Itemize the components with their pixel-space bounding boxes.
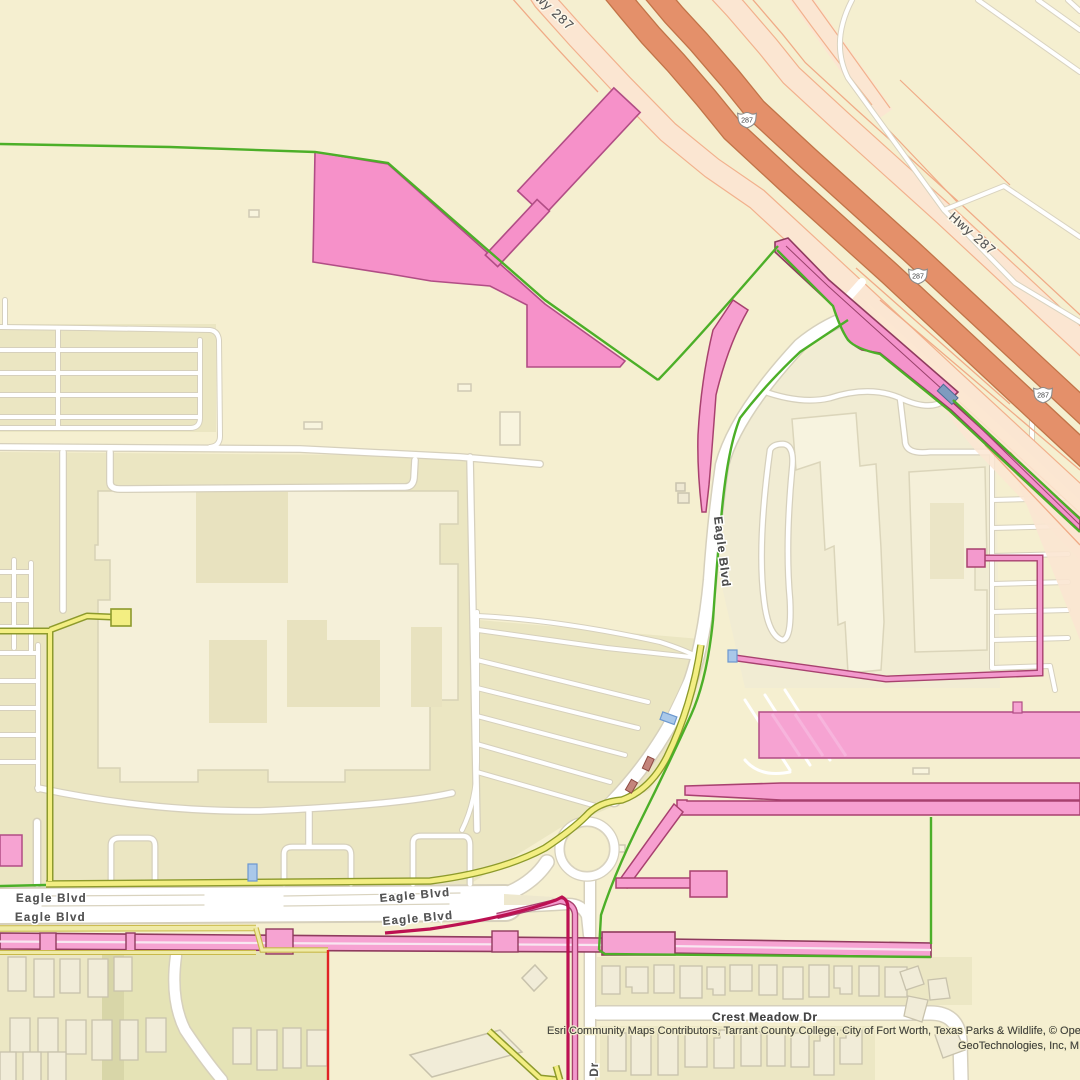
svg-text:Crest Meadow Dr: Crest Meadow Dr — [712, 1010, 818, 1024]
svg-text:st Dr: st Dr — [589, 1062, 601, 1080]
svg-text:Esri Community Maps Contributo: Esri Community Maps Contributors, Tarran… — [547, 1025, 1080, 1037]
svg-text:GeoTechnologies, Inc, METI/NAS: GeoTechnologies, Inc, METI/NASA — [958, 1040, 1080, 1052]
svg-text:287: 287 — [741, 117, 753, 125]
svg-text:287: 287 — [912, 273, 924, 281]
svg-text:287: 287 — [1037, 392, 1049, 400]
svg-text:Eagle Blvd: Eagle Blvd — [16, 893, 87, 905]
svg-text:Eagle Blvd: Eagle Blvd — [15, 912, 86, 924]
